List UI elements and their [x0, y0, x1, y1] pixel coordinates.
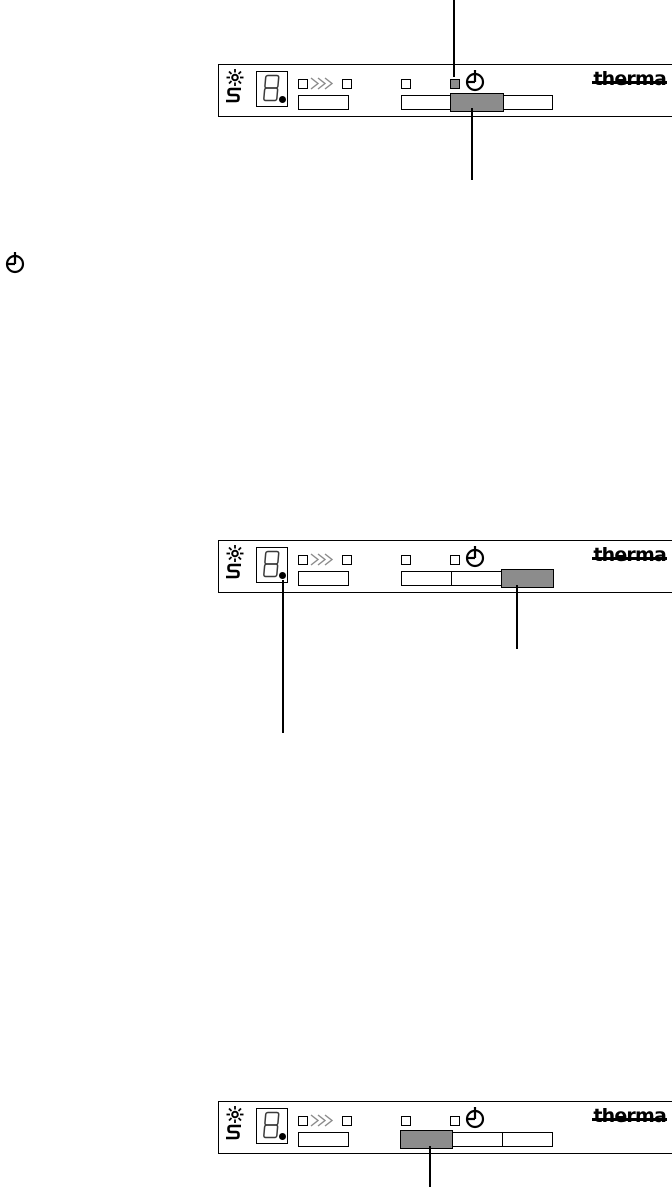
- progress-segment-2: [452, 96, 502, 109]
- progress-segment-3: [503, 96, 552, 109]
- program-button: [298, 95, 349, 110]
- led-square: [342, 555, 352, 565]
- callout-line-delay-led: [453, 0, 455, 77]
- control-panel-diagram-1: therma: [218, 64, 672, 117]
- led-square: [342, 1116, 352, 1126]
- salt-s-icon: [224, 86, 244, 105]
- callout-line-middle-segment: [471, 108, 473, 180]
- led-square: [401, 1116, 411, 1126]
- triple-chevron-icon: [309, 1113, 334, 1128]
- progress-bar: [401, 571, 553, 586]
- led-square: [342, 79, 352, 89]
- delay-led: [450, 1116, 460, 1126]
- delay-led: [450, 555, 460, 565]
- progress-segment-1: [402, 1133, 452, 1146]
- progress-segment-2: [452, 1133, 502, 1146]
- rinse-aid-sun-icon: [225, 68, 245, 87]
- program-button: [298, 1132, 349, 1147]
- progress-segment-3: [503, 1133, 552, 1146]
- rinse-aid-sun-icon: [225, 544, 245, 563]
- program-display: [256, 1108, 288, 1144]
- brand-logo: therma: [593, 546, 666, 564]
- display-dot: [279, 96, 286, 103]
- callout-line-right-segment: [516, 585, 518, 649]
- triple-chevron-icon: [309, 552, 334, 567]
- program-button: [298, 571, 349, 586]
- manual-page: therma: [0, 0, 672, 1187]
- salt-s-icon: [224, 562, 244, 581]
- delay-led: [450, 79, 460, 89]
- led-square: [298, 79, 308, 89]
- delay-clock-icon: [464, 1105, 486, 1129]
- led-square: [298, 1116, 308, 1126]
- callout-line-left-segment: [429, 1146, 431, 1187]
- delay-clock-icon: [464, 544, 486, 568]
- progress-bar: [401, 1132, 553, 1147]
- control-panel-diagram-2: therma: [218, 540, 672, 593]
- delay-clock-icon: [464, 68, 486, 92]
- progress-segment-1: [402, 572, 452, 585]
- progress-segment-2: [452, 572, 502, 585]
- brand-logo: therma: [593, 70, 666, 88]
- rinse-aid-sun-icon: [225, 1105, 245, 1124]
- control-panel-diagram-3: therma: [218, 1101, 672, 1154]
- progress-segment-3: [503, 572, 552, 585]
- display-dot: [279, 1133, 286, 1140]
- led-square: [298, 555, 308, 565]
- delay-timer-clock-icon: [4, 250, 26, 274]
- led-square: [401, 79, 411, 89]
- brand-logo: therma: [593, 1107, 666, 1125]
- program-display: [256, 547, 288, 583]
- led-square: [401, 555, 411, 565]
- program-display: [256, 71, 288, 107]
- salt-s-icon: [224, 1123, 244, 1142]
- triple-chevron-icon: [309, 76, 334, 91]
- display-dot: [279, 572, 286, 579]
- callout-line-display-dot: [282, 580, 284, 733]
- progress-bar: [401, 95, 553, 110]
- progress-segment-1: [402, 96, 452, 109]
